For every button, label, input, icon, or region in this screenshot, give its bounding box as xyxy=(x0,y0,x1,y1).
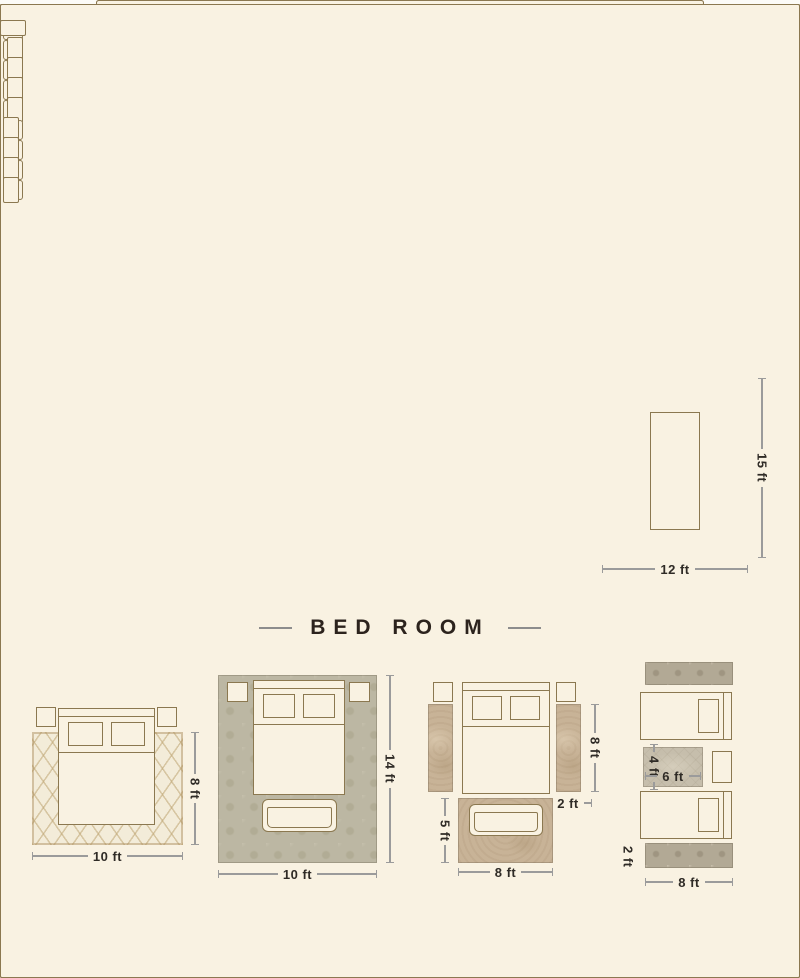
runner-rug-top xyxy=(645,662,733,685)
mid-rug-width-dimension: 6 ft xyxy=(645,768,701,784)
rug-size-guide: LIVING ROOM 8 ft 5 ft 10 ft 8 ft xyxy=(0,0,800,978)
bed-room-layout-4: 4 ft 6 ft 2 ft 8 ft xyxy=(0,0,800,978)
runner-length-dimension: 8 ft xyxy=(645,874,733,890)
twin-bed xyxy=(640,692,732,740)
runner-width-dimension: 2 ft xyxy=(620,842,636,869)
nightstand xyxy=(712,751,732,783)
twin-bed xyxy=(640,791,732,839)
runner-rug-bottom xyxy=(645,843,733,868)
